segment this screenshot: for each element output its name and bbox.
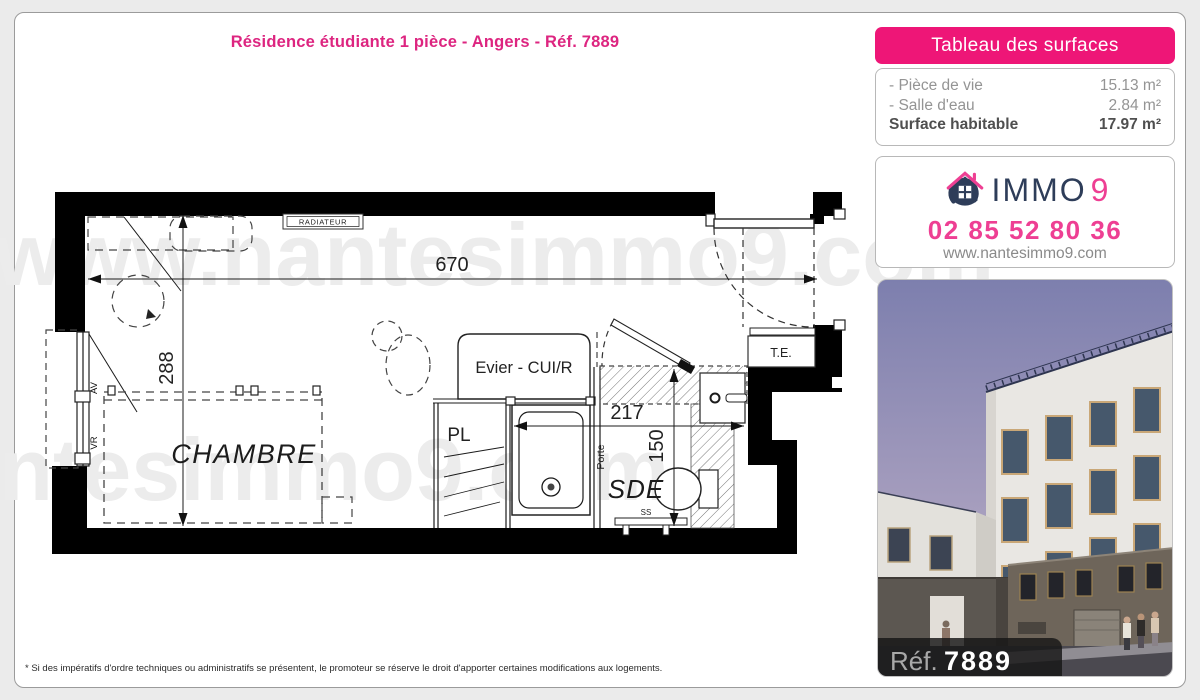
surface-total-value: 17.97 m² <box>1099 115 1161 135</box>
house-icon <box>942 169 988 211</box>
building-render: Réf. 7889 <box>878 280 1173 677</box>
surface-total-label: Surface habitable <box>889 115 1018 135</box>
agency-logo-text: IMMO <box>992 172 1087 209</box>
surface-row-value: 2.84 m² <box>1108 96 1161 116</box>
person-icon <box>943 621 950 628</box>
ref-value: 7889 <box>944 646 1012 676</box>
surface-row-label: - Salle d'eau <box>889 96 975 116</box>
surface-total-row: Surface habitable 17.97 m² <box>889 115 1161 135</box>
surface-row-label: - Pièce de vie <box>889 76 983 96</box>
surface-row: - Pièce de vie 15.13 m² <box>889 76 1161 96</box>
surface-row-value: 15.13 m² <box>1100 76 1161 96</box>
footnote: * Si des impératifs d'ordre techniques o… <box>25 663 662 674</box>
agency-website: www.nantesimmo9.com <box>876 245 1174 263</box>
agency-panel: IMMO9 02 85 52 80 36 www.nantesimmo9.com <box>875 156 1175 268</box>
surface-table: - Pièce de vie 15.13 m² - Salle d'eau 2.… <box>875 68 1175 146</box>
ref-badge: Réf. 7889 <box>878 638 1062 677</box>
agency-phone: 02 85 52 80 36 <box>876 216 1174 244</box>
surface-row: - Salle d'eau 2.84 m² <box>889 96 1161 116</box>
page-title: Résidence étudiante 1 pièce - Angers - R… <box>55 33 795 52</box>
agency-logo-digit: 9 <box>1091 172 1109 209</box>
agency-logo: IMMO9 <box>876 169 1174 211</box>
surface-table-header: Tableau des surfaces <box>875 27 1175 64</box>
building-brown <box>1008 548 1173 652</box>
building-photo: Réf. 7889 <box>877 279 1173 677</box>
pedestrians <box>1123 612 1159 651</box>
ref-label: Réf. <box>890 646 938 676</box>
